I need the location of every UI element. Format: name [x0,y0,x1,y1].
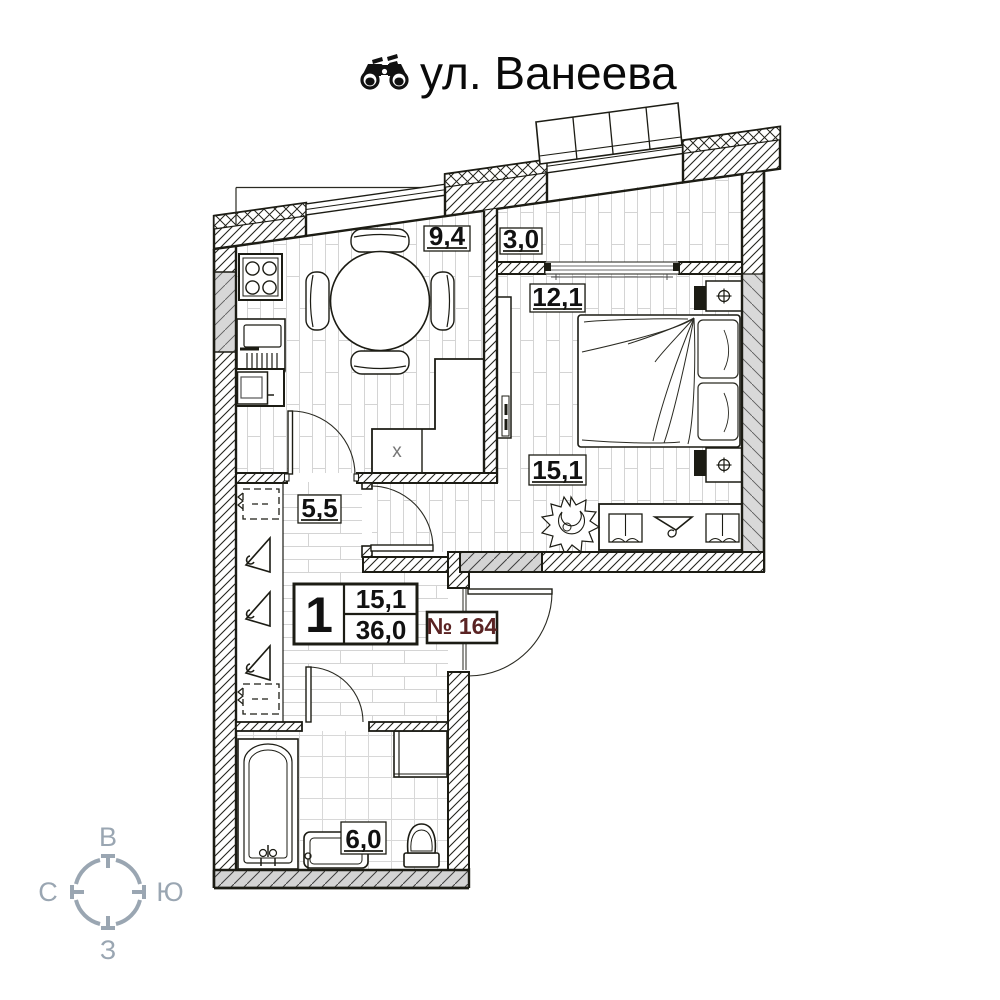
svg-text:С: С [38,877,58,907]
svg-text:З: З [100,935,116,965]
svg-text:15,1: 15,1 [532,455,583,485]
svg-text:Ю: Ю [156,877,183,907]
svg-text:12,1: 12,1 [532,282,583,312]
svg-text:1: 1 [305,587,333,643]
svg-text:x: x [392,441,402,462]
svg-text:ул. Ванеева: ул. Ванеева [420,47,677,99]
svg-text:В: В [99,822,117,852]
svg-text:15,1: 15,1 [356,584,407,614]
svg-text:9,4: 9,4 [429,221,466,251]
svg-text:3,0: 3,0 [503,224,539,254]
svg-text:36,0: 36,0 [356,615,407,645]
svg-text:5,5: 5,5 [301,493,337,523]
svg-text:6,0: 6,0 [345,824,381,854]
svg-text:№ 164: № 164 [427,613,498,639]
